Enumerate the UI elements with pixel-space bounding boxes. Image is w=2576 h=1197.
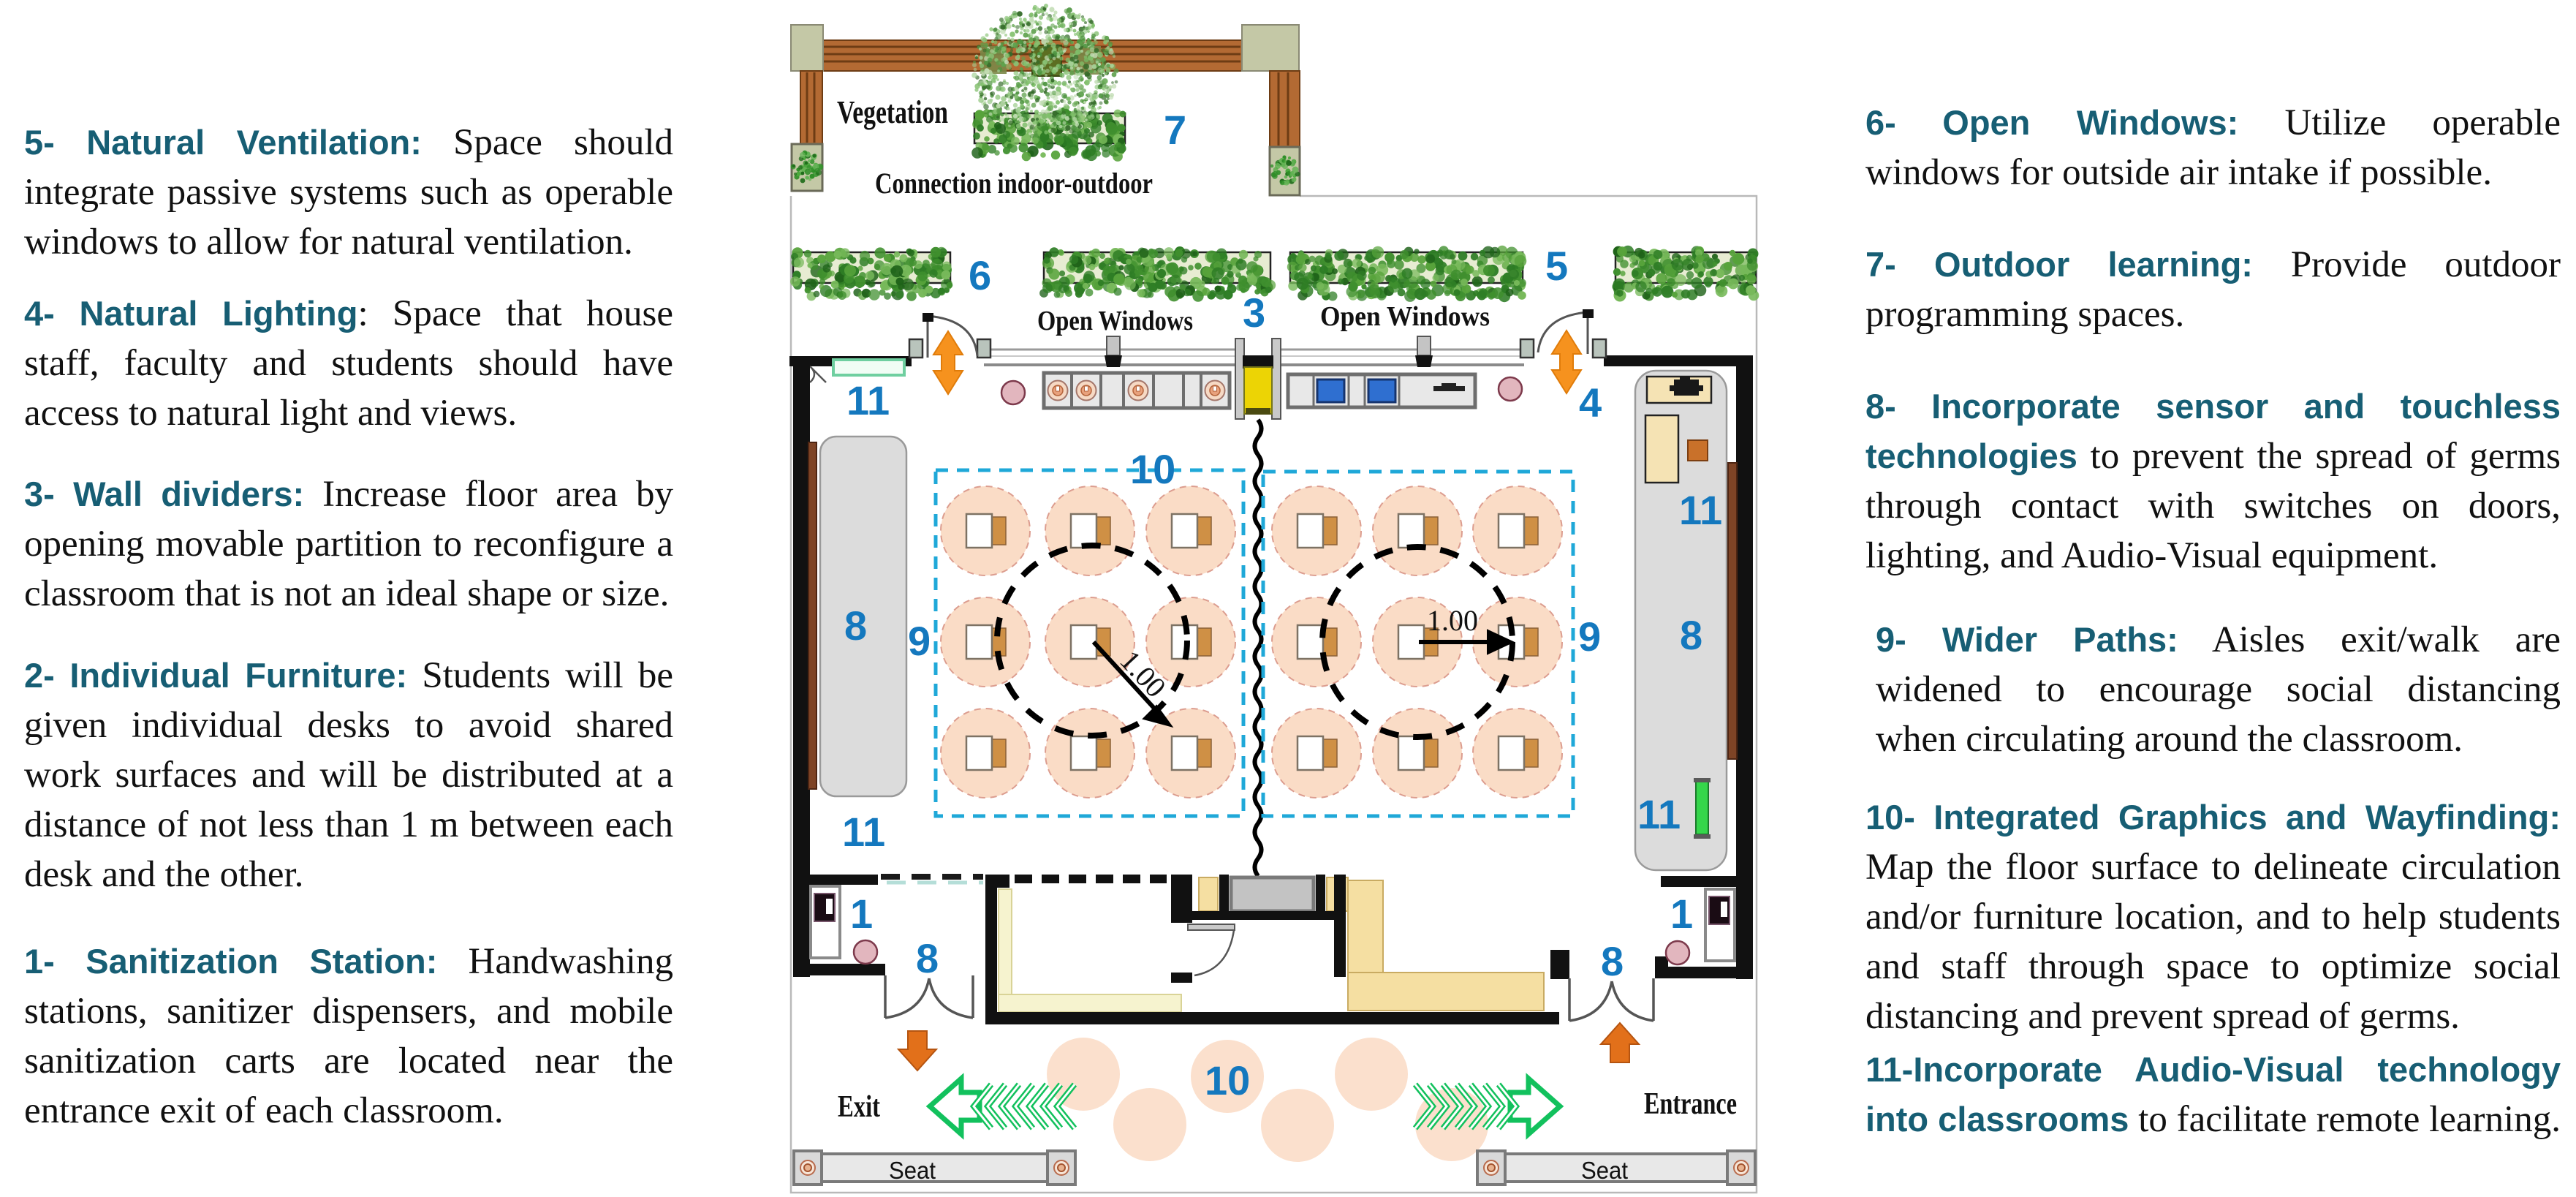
svg-text:8: 8 (1680, 612, 1702, 658)
svg-text:11: 11 (1637, 791, 1681, 837)
svg-text:8: 8 (916, 935, 939, 981)
svg-text:Exit: Exit (838, 1090, 880, 1124)
svg-text:9: 9 (1578, 613, 1601, 660)
svg-text:Open Windows: Open Windows (1037, 306, 1193, 336)
svg-text:8: 8 (844, 603, 867, 649)
svg-text:Seat: Seat (889, 1157, 936, 1184)
svg-text:11: 11 (842, 809, 885, 855)
svg-text:1.00: 1.00 (1427, 604, 1478, 637)
svg-text:Connection indoor-outdoor: Connection indoor-outdoor (875, 167, 1153, 200)
svg-text:10: 10 (1205, 1057, 1250, 1103)
svg-text:11: 11 (846, 377, 890, 423)
svg-text:Open Windows: Open Windows (1320, 301, 1490, 332)
svg-text:7: 7 (1164, 107, 1186, 153)
svg-text:9: 9 (908, 618, 931, 664)
svg-text:6: 6 (969, 252, 991, 298)
svg-text:5: 5 (1545, 243, 1568, 289)
svg-text:Entrance: Entrance (1644, 1087, 1737, 1121)
svg-text:3: 3 (1243, 290, 1265, 336)
svg-text:Vegetation: Vegetation (837, 94, 948, 130)
svg-text:11: 11 (1679, 487, 1722, 533)
svg-text:8: 8 (1601, 938, 1624, 984)
svg-text:1: 1 (1670, 891, 1693, 937)
svg-text:4: 4 (1579, 380, 1602, 426)
svg-text:1: 1 (850, 891, 873, 937)
svg-text:10: 10 (1130, 446, 1175, 492)
svg-text:Seat: Seat (1581, 1157, 1628, 1184)
